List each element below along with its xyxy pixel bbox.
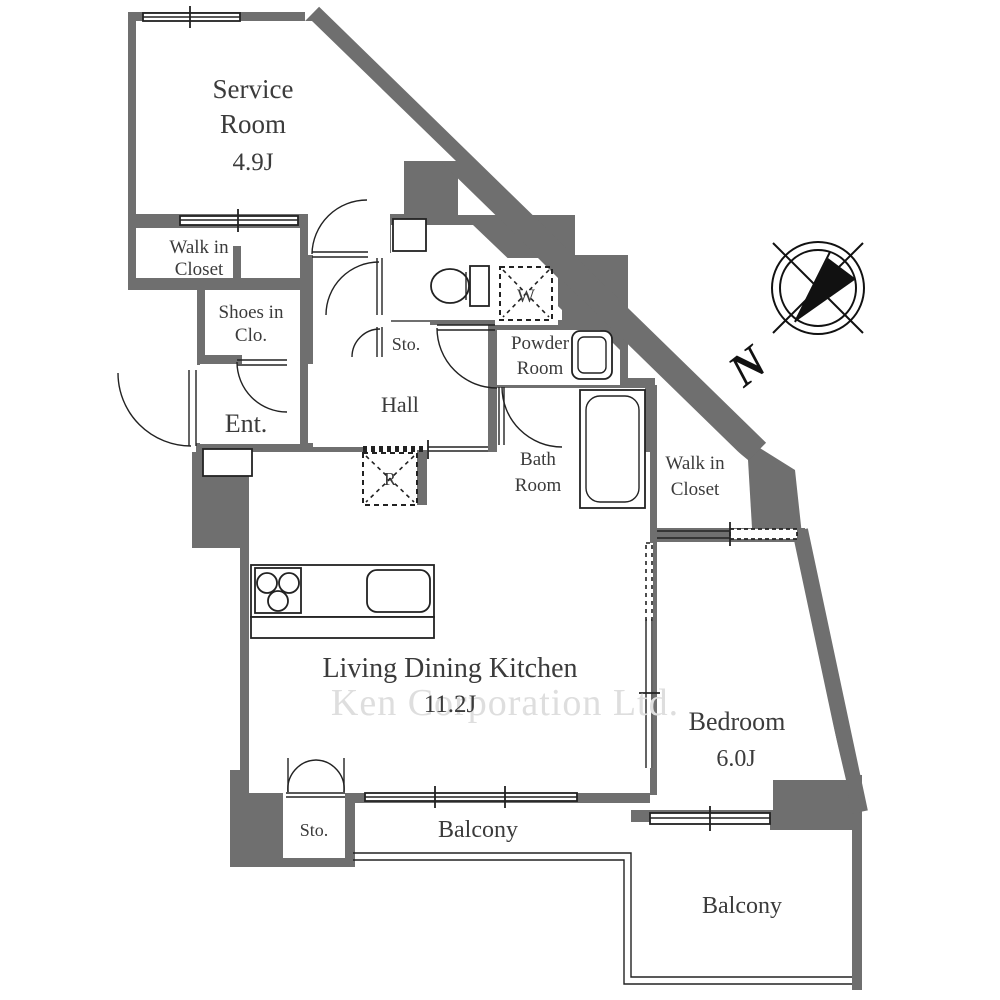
entrance-step bbox=[203, 449, 252, 476]
floor-plan-page: N Ken Corporation Ltd. Service Room 4.9J… bbox=[0, 0, 1000, 1000]
label-powder-room: Room bbox=[517, 358, 564, 379]
label-storage-hall: Sto. bbox=[392, 334, 421, 354]
stove-burner bbox=[257, 573, 277, 593]
stove-burner bbox=[279, 573, 299, 593]
label-entrance: Ent. bbox=[225, 409, 268, 438]
label-balcony-right: Balcony bbox=[702, 893, 782, 919]
compass-north-label: N bbox=[718, 334, 778, 396]
kitchen-counter bbox=[251, 565, 434, 638]
label-balcony-left: Balcony bbox=[438, 817, 518, 843]
stove-burner bbox=[268, 591, 288, 611]
label-shoes-closet: Shoes in bbox=[219, 302, 284, 323]
label-wic-left: Closet bbox=[175, 259, 224, 280]
watermark: Ken Corporation Ltd. bbox=[331, 682, 679, 724]
compass-icon: N bbox=[718, 242, 864, 397]
label-storage-balcony: Sto. bbox=[300, 820, 329, 840]
label-wic-right: Walk in bbox=[665, 453, 725, 474]
powder-sink-icon bbox=[572, 331, 612, 379]
label-service-room: Service bbox=[213, 74, 294, 104]
bathtub-icon bbox=[580, 390, 645, 508]
label-bath-room: Room bbox=[515, 475, 562, 496]
label-hall: Hall bbox=[381, 392, 419, 417]
kitchen-sink-icon bbox=[367, 570, 430, 612]
label-wic-left: Walk in bbox=[169, 237, 229, 258]
entrance-door[interactable] bbox=[118, 370, 196, 446]
label-refrigerator: R bbox=[384, 469, 396, 489]
label-powder-room: Powder bbox=[511, 333, 570, 354]
label-washing-machine: W bbox=[517, 286, 535, 307]
label-ldk-area: 11.2J bbox=[424, 691, 477, 718]
label-shoes-closet: Clo. bbox=[235, 325, 267, 346]
label-bedroom-area: 6.0J bbox=[716, 746, 755, 772]
label-wic-right: Closet bbox=[671, 479, 720, 500]
toilet-icon bbox=[431, 266, 489, 306]
label-ldk: Living Dining Kitchen bbox=[322, 653, 577, 684]
floor-plan-canvas: N Ken Corporation Ltd. Service Room 4.9J… bbox=[0, 0, 1000, 1000]
label-bedroom: Bedroom bbox=[689, 707, 786, 736]
duct-box bbox=[393, 219, 426, 251]
label-bath-room: Bath bbox=[520, 449, 556, 470]
label-service-area: 4.9J bbox=[233, 149, 274, 176]
label-service-room: Room bbox=[220, 109, 286, 139]
